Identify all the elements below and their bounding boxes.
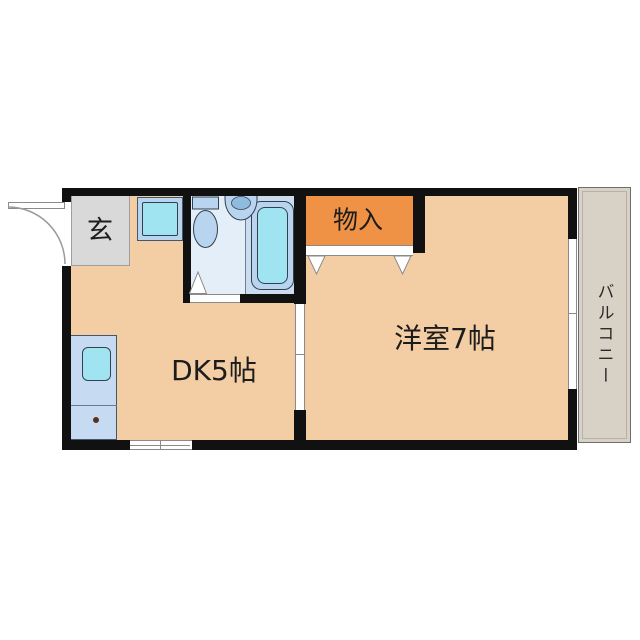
wall-closet-stub — [413, 196, 425, 253]
closet-door-triangles — [306, 256, 413, 276]
toilet-icon — [191, 196, 221, 250]
western-room-label: 洋室7帖 — [394, 325, 496, 353]
balcony-window — [568, 239, 577, 389]
washer-space-inner — [142, 202, 178, 236]
stove-knob-icon — [93, 417, 99, 423]
wall-partition-lower — [294, 410, 306, 440]
closet-door-sill — [306, 245, 413, 256]
partition-door-tick — [296, 354, 304, 355]
washer-space-icon — [137, 197, 183, 241]
wash-basin-icon — [224, 194, 258, 222]
kitchen-window — [130, 440, 192, 450]
kitchen-window-tick — [160, 441, 161, 449]
partition-door — [295, 304, 305, 410]
wall-partition-upper — [294, 196, 306, 304]
counter-divider — [71, 405, 117, 406]
bathroom-door-sill — [190, 294, 240, 303]
balcony-label: バルコニー — [595, 283, 612, 388]
wall-top — [62, 188, 577, 196]
kitchen-sink-icon — [82, 347, 111, 381]
entrance-label: 玄 — [87, 218, 113, 244]
bathroom-door-triangle — [189, 271, 209, 295]
bathtub-inner — [257, 207, 288, 284]
door-swing-arc — [6, 200, 70, 268]
storage-label: 物入 — [333, 208, 383, 233]
balcony-window-divider — [569, 313, 576, 314]
dk-label: DK5帖 — [171, 357, 257, 385]
floor-plan-image: { "plan": { "type": "apartment-floor-pla… — [0, 0, 640, 640]
kitchen-counter — [70, 335, 117, 440]
